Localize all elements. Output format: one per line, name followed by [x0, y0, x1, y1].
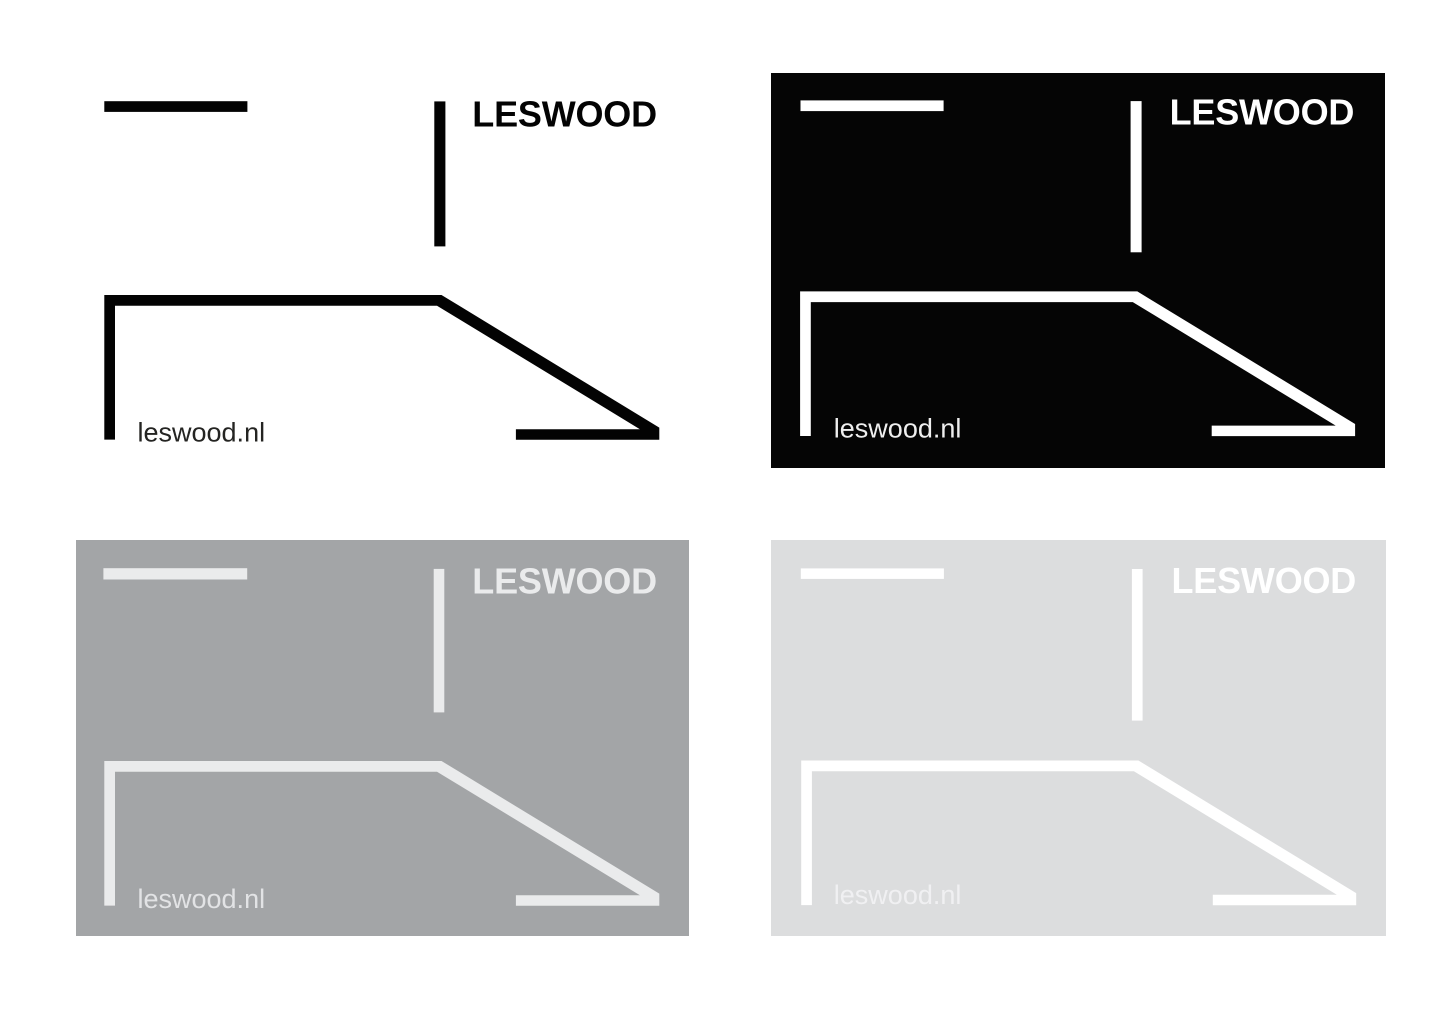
svg-text:LESWOOD: LESWOOD: [472, 94, 657, 135]
svg-text:LESWOOD: LESWOOD: [472, 561, 657, 602]
svg-text:leswood.nl: leswood.nl: [834, 414, 962, 444]
svg-text:leswood.nl: leswood.nl: [138, 418, 266, 448]
svg-text:LESWOOD: LESWOOD: [1172, 560, 1357, 601]
svg-text:leswood.nl: leswood.nl: [138, 884, 266, 914]
svg-text:leswood.nl: leswood.nl: [834, 880, 962, 910]
svg-text:LESWOOD: LESWOOD: [1170, 91, 1355, 132]
